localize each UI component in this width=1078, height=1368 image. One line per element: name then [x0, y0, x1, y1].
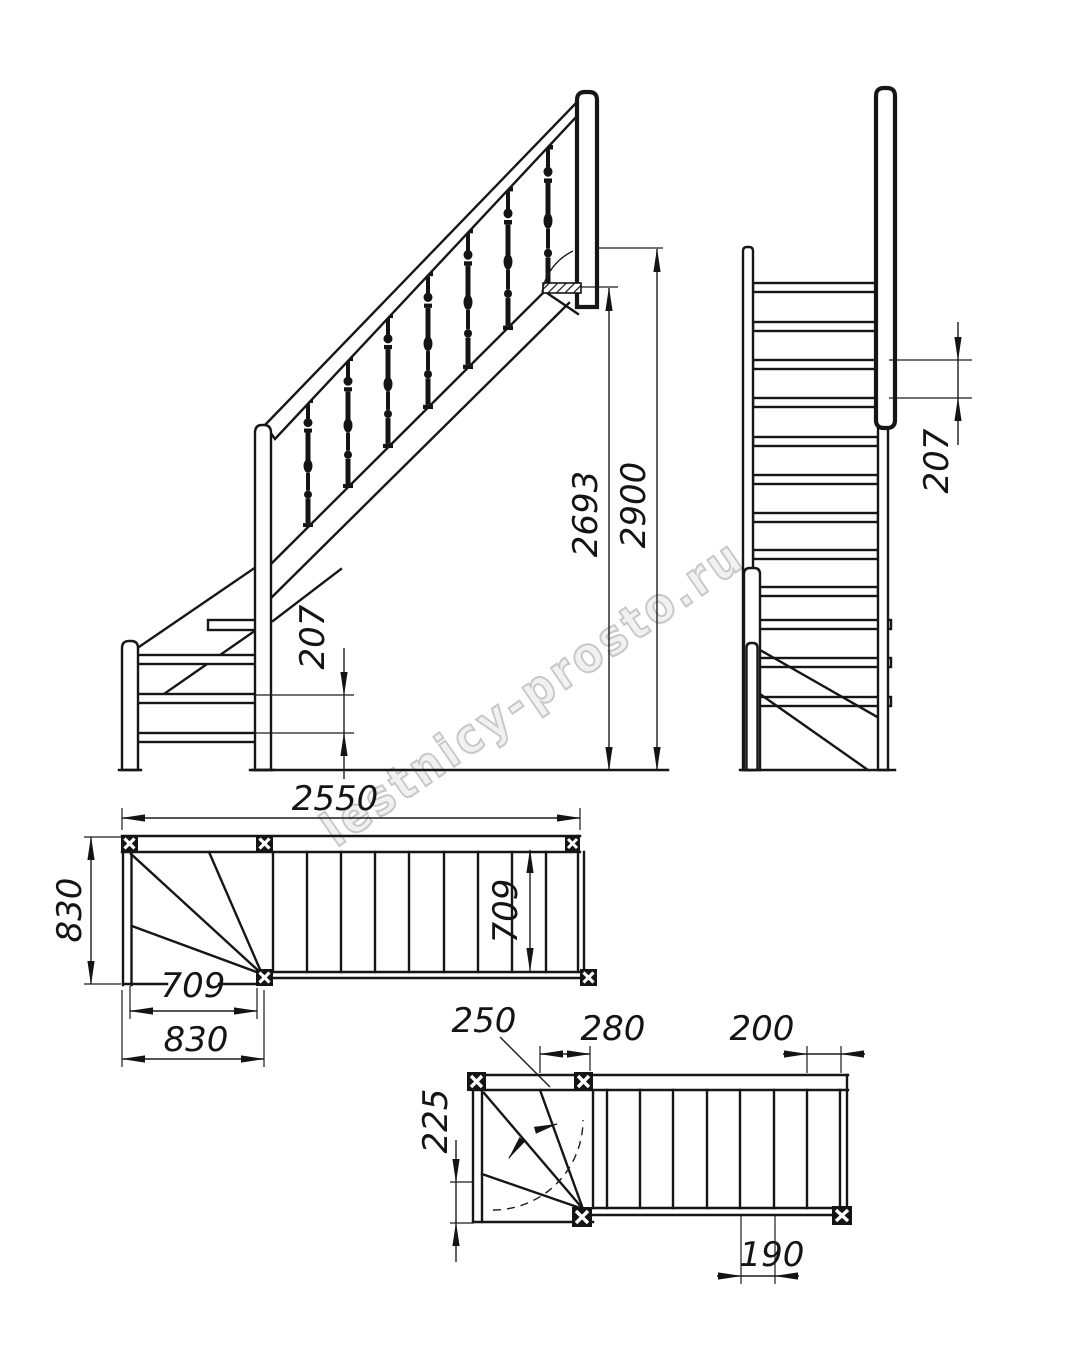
post-marker [574, 1072, 593, 1091]
top-newel-post [577, 92, 597, 307]
post-marker [565, 836, 580, 851]
landing-tread-hatched [543, 283, 581, 293]
bottom-newel-post [122, 641, 138, 770]
dim-label-stair-width: 830 [50, 878, 90, 943]
lower-tread [133, 655, 256, 664]
dim-label-floor-to-landing: 2693 [566, 471, 606, 558]
lower-tread [133, 733, 256, 742]
stair-drawing: lestnicy-prosto.ru [0, 0, 1078, 1368]
post-marker [572, 1207, 592, 1227]
post-marker [467, 1072, 486, 1091]
post-marker [121, 835, 138, 852]
dim-label-flight-width: 709 [486, 879, 526, 944]
dim-label-280: 280 [581, 1009, 646, 1049]
dim-label-winder-tread: 250 [452, 1001, 517, 1041]
dim-label-riser-front: 207 [917, 428, 957, 493]
handrail-post [876, 88, 895, 428]
dim-label-225: 225 [416, 1089, 456, 1154]
dim-label-190: 190 [740, 1235, 805, 1275]
dim-label-floor-to-floor: 2900 [614, 462, 654, 549]
blueprint-page: lestnicy-prosto.ru [0, 0, 1078, 1368]
post-marker [580, 969, 597, 986]
dim-label-total-run: 2550 [292, 779, 379, 819]
dim-label-riser-side: 207 [293, 604, 333, 669]
dim-label-winder-width: 830 [164, 1020, 229, 1060]
post-marker [256, 835, 273, 852]
winder-tread [208, 620, 256, 630]
post-marker [256, 969, 273, 986]
dim-label-winder-run: 709 [161, 966, 226, 1006]
post-marker [832, 1206, 852, 1225]
main-newel-post [255, 425, 271, 770]
lower-tread [133, 694, 256, 703]
rear-newel-post-2 [747, 643, 758, 770]
dim-label-200: 200 [730, 1009, 795, 1049]
